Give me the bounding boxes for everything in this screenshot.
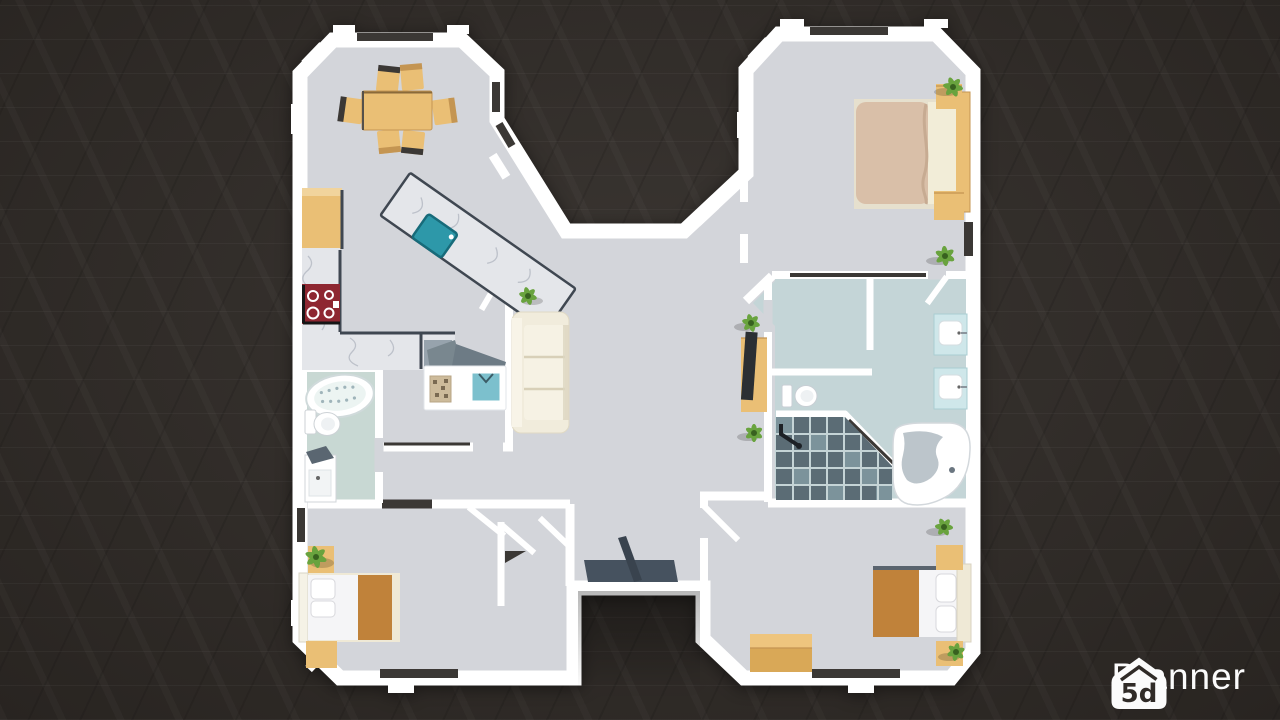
dining-chair [376,65,401,93]
bathroom-sink[interactable] [934,368,967,409]
headboard [957,564,971,642]
pillow [936,606,956,632]
kitchen-cabinet[interactable] [302,188,342,249]
planner5d-watermark[interactable]: Planner 5d [1111,656,1246,698]
nightstand[interactable] [306,641,337,668]
nightstand[interactable] [936,545,963,570]
dining-chair [377,129,401,154]
dining-table [362,91,432,130]
dresser[interactable] [750,634,812,672]
planner5d-3d-viewport[interactable]: Planner 5d [0,0,1280,720]
bed-bottom-right[interactable] [873,564,971,642]
blue-towel-panel [471,372,501,402]
pillow [311,601,335,617]
bed-bottom-left[interactable] [299,573,400,642]
nightstand[interactable] [934,191,964,220]
watermark-icon-text: 5d [1121,679,1158,709]
dining-chair [431,97,457,125]
planner5d-house-icon: 5d [1111,656,1167,710]
entry-porch-shadow [578,591,700,691]
dining-chair [400,63,424,91]
pillow [311,579,335,599]
headboard [299,573,308,642]
stove[interactable] [302,284,340,324]
pillow [936,574,956,602]
floor-plan [0,0,1280,720]
tv-stand[interactable] [741,332,767,412]
toilet-right[interactable] [782,385,817,407]
mosaic-panel [430,376,451,402]
bathroom-sink[interactable] [934,314,967,355]
bathroom-left-vanity[interactable] [305,446,336,502]
sofa[interactable] [512,312,569,433]
dining-chair [337,96,364,124]
dining-chair [401,130,425,155]
